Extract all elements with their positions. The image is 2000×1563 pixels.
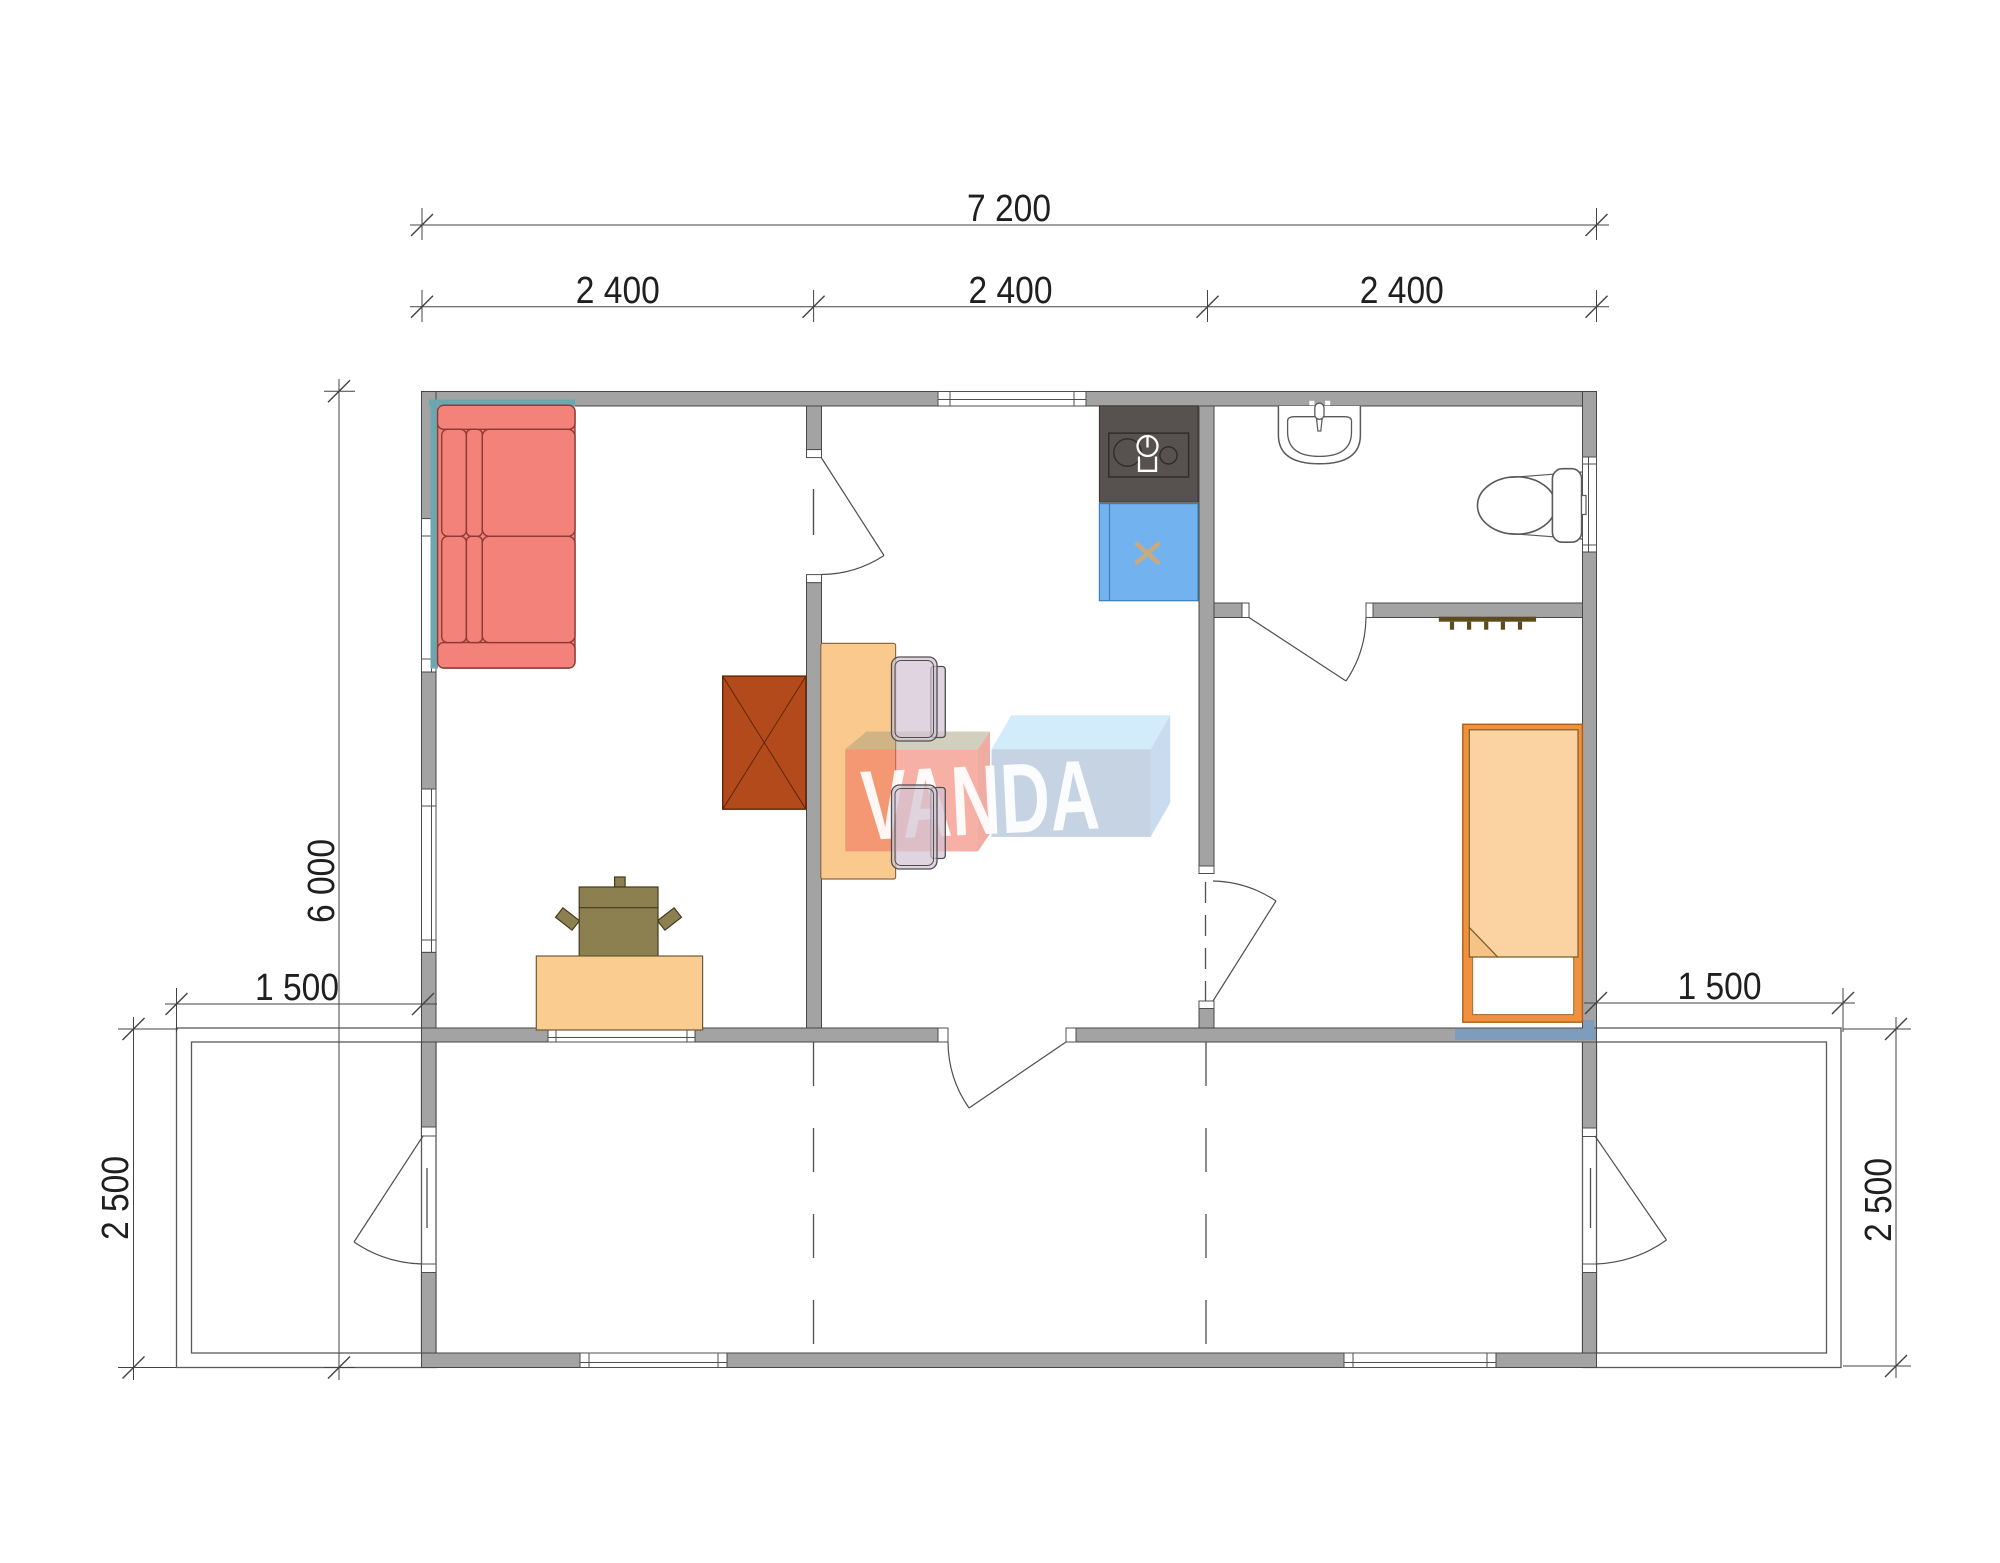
svg-text:1 500: 1 500 bbox=[255, 967, 339, 1009]
svg-text:2 400: 2 400 bbox=[1360, 270, 1444, 312]
svg-text:1 500: 1 500 bbox=[1678, 966, 1762, 1008]
svg-text:2 400: 2 400 bbox=[969, 270, 1053, 312]
svg-text:6 000: 6 000 bbox=[301, 839, 343, 923]
svg-text:7 200: 7 200 bbox=[967, 188, 1051, 230]
svg-text:2 500: 2 500 bbox=[95, 1156, 137, 1240]
svg-text:2 400: 2 400 bbox=[576, 270, 660, 312]
svg-text:2 500: 2 500 bbox=[1858, 1158, 1900, 1242]
